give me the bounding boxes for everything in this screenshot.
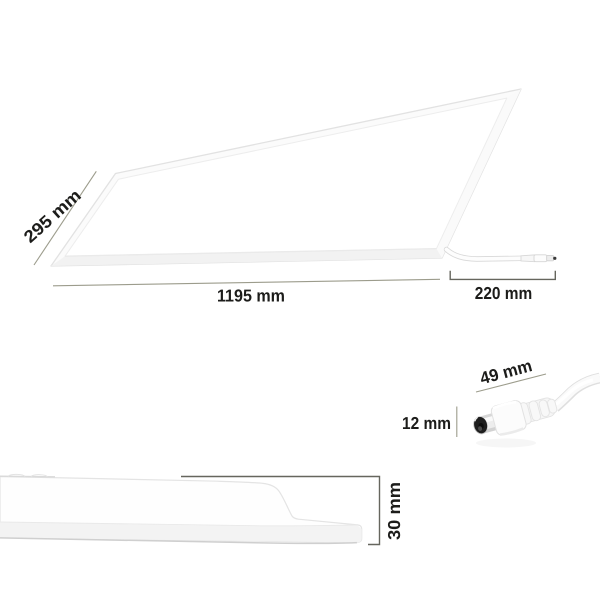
svg-text:49 mm: 49 mm [478,355,534,388]
svg-text:220 mm: 220 mm [475,283,533,303]
svg-text:12 mm: 12 mm [402,413,451,433]
svg-text:1195 mm: 1195 mm [217,286,285,306]
svg-text:30 mm: 30 mm [384,482,404,540]
